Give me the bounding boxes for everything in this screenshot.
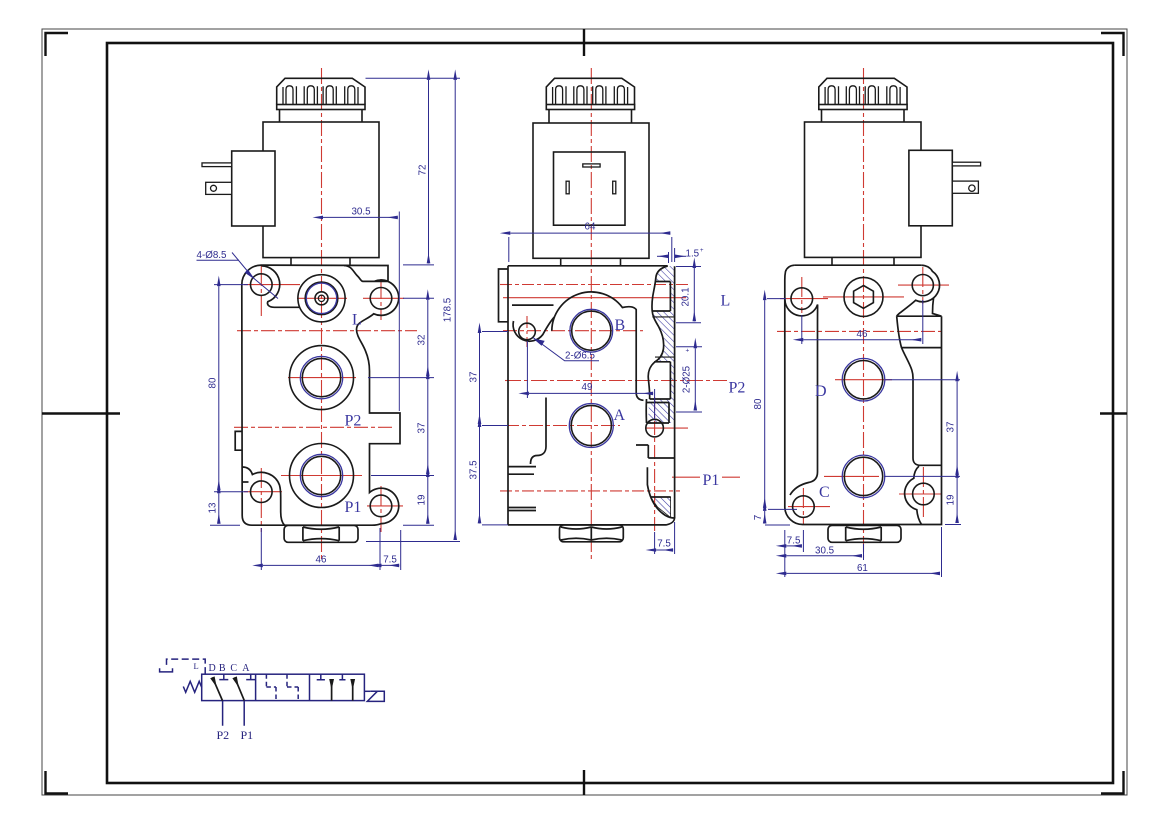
svg-text:19: 19 [946,495,957,506]
svg-text:20.1: 20.1 [681,287,692,306]
svg-text:1.5: 1.5 [686,249,700,260]
svg-text:49: 49 [582,382,593,393]
svg-text:37: 37 [417,423,428,434]
svg-text:2-Ø25: 2-Ø25 [682,365,693,393]
svg-text:37.5: 37.5 [469,460,480,480]
svg-text:7: 7 [753,515,764,520]
svg-text:P1: P1 [345,499,362,516]
svg-text:P1: P1 [241,728,254,742]
svg-text:P2: P2 [729,380,746,397]
svg-text:D: D [815,383,827,400]
svg-text:L: L [194,661,199,671]
svg-text:P1: P1 [703,472,720,489]
svg-text:30.5: 30.5 [815,546,835,557]
svg-text:C: C [230,663,237,674]
svg-text:7.5: 7.5 [787,536,801,547]
svg-text:L: L [721,293,731,310]
svg-text:D: D [209,663,216,674]
svg-text:46: 46 [857,329,868,340]
svg-text:B: B [615,317,626,334]
svg-text:C: C [819,484,830,501]
svg-text:37: 37 [946,422,957,433]
svg-text:P2: P2 [345,413,362,430]
svg-text:19: 19 [417,495,428,506]
svg-text:46: 46 [316,555,327,566]
svg-text:A: A [614,407,626,424]
svg-text:2-Ø6.5: 2-Ø6.5 [565,351,596,362]
svg-text:178.5: 178.5 [443,297,454,322]
svg-text:30.5: 30.5 [351,207,371,218]
svg-text:72: 72 [417,165,428,176]
svg-text:+: + [700,248,704,254]
svg-text:+: + [686,348,692,352]
svg-text:4-Ø8.5: 4-Ø8.5 [197,250,228,261]
svg-text:B: B [219,663,226,674]
svg-text:L: L [352,312,362,329]
svg-text:13: 13 [208,502,219,513]
svg-text:P2: P2 [217,728,230,742]
svg-text:7.5: 7.5 [657,539,671,550]
svg-text:32: 32 [417,335,428,346]
svg-text:7.5: 7.5 [383,555,397,566]
svg-text:A: A [242,663,250,674]
svg-text:80: 80 [753,398,764,409]
svg-text:64: 64 [585,222,596,233]
svg-text:61: 61 [857,563,868,574]
svg-text:37: 37 [469,372,480,383]
svg-text:80: 80 [208,377,219,388]
